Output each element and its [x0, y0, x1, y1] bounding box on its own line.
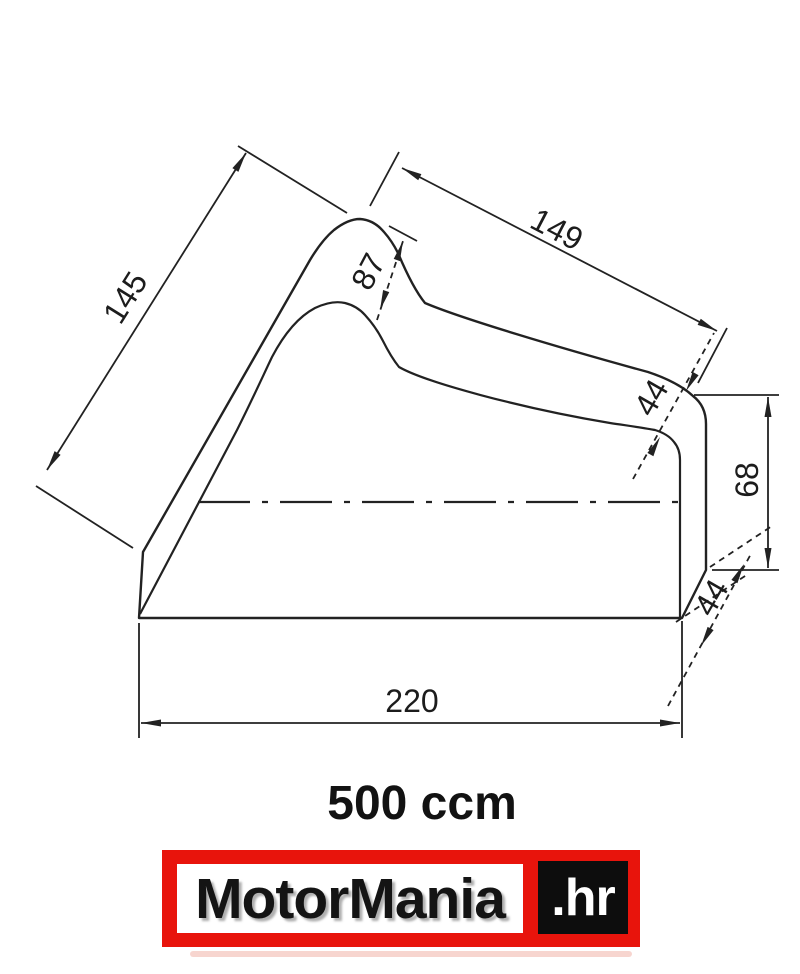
technical-drawing: 145 149 87 44 — [0, 0, 800, 770]
arrow — [47, 451, 61, 470]
logo-shadow — [190, 951, 632, 957]
arrow — [394, 241, 403, 261]
dim-label-87: 87 — [344, 247, 392, 295]
arrow — [141, 720, 161, 727]
dim-base-length: 220 — [139, 621, 682, 738]
product-image: 145 149 87 44 — [0, 0, 800, 974]
arrow — [701, 627, 714, 646]
arrow — [660, 720, 680, 727]
logo-brand-box: MotorMania — [177, 864, 523, 933]
arrow — [765, 548, 772, 568]
arrow — [765, 397, 772, 417]
dim-label-68: 68 — [729, 462, 765, 498]
cover-inner-seam — [140, 302, 680, 618]
dim-top-slant: 149 — [370, 152, 727, 383]
dim-label-44-lower: 44 — [687, 573, 736, 622]
arrow — [380, 290, 389, 310]
arrow — [402, 168, 421, 180]
cover-outline — [139, 219, 706, 618]
logo-tld-box: .hr — [538, 861, 628, 934]
engine-size-caption: 500 ccm — [22, 776, 800, 831]
arrow — [232, 153, 246, 172]
logo-tld-text: .hr — [551, 868, 614, 928]
dim-front-slant: 145 — [36, 146, 347, 548]
dim-label-149: 149 — [525, 201, 589, 258]
dim-label-145: 145 — [96, 265, 155, 329]
dim-label-220: 220 — [385, 683, 438, 719]
arrow — [698, 319, 717, 331]
motormania-logo: MotorMania .hr — [162, 850, 640, 947]
arrow — [731, 564, 744, 583]
logo-brand-text: MotorMania — [195, 866, 505, 932]
